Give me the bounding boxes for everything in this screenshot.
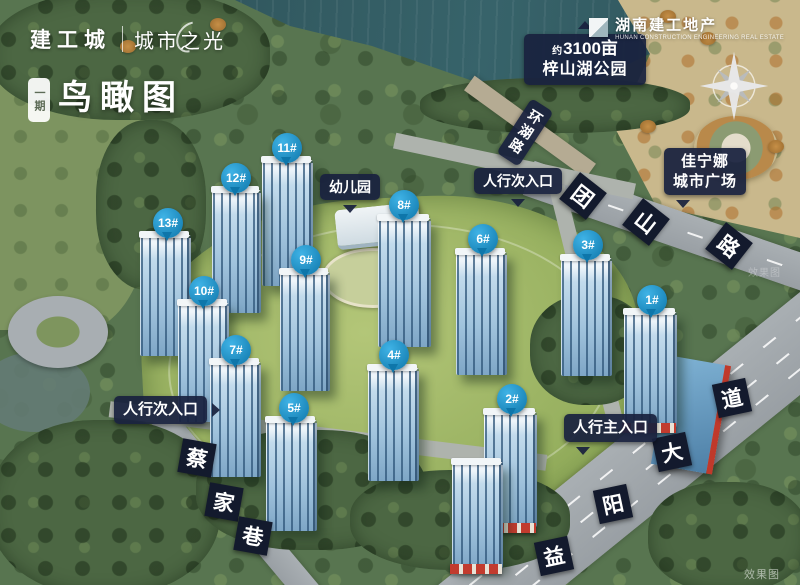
page-title: 鸟瞰图 xyxy=(58,70,184,119)
developer-logo: 湖南建工地产 HUNAN CONSTRUCTION ENGINEERING RE… xyxy=(589,14,784,41)
watermark: 效果图 xyxy=(744,566,780,582)
developer-logo-icon xyxy=(589,18,608,37)
building-badge-1: 1# xyxy=(637,285,667,315)
main-entrance-label: 人行主入口 xyxy=(564,414,657,442)
building-badge-13: 13# xyxy=(153,208,183,238)
tower-1# xyxy=(624,312,677,427)
tower-12# xyxy=(212,190,261,313)
building-badge-9: 9# xyxy=(291,245,321,275)
pointer-down-icon xyxy=(343,205,357,213)
park-area-prefix: 约 xyxy=(552,46,562,57)
building-badge-6: 6# xyxy=(468,224,498,254)
compass-icon xyxy=(696,48,772,124)
secondary-entrance-label-left: 人行次入口 xyxy=(114,396,207,424)
road-name-char: 阳 xyxy=(593,484,633,524)
secondary-entrance-label-top: 人行次入口 xyxy=(474,168,562,194)
building-badge-2: 2# xyxy=(497,384,527,414)
entrance-text: 人行次入口 xyxy=(123,401,198,418)
tower-7# xyxy=(210,362,261,477)
road-name-char: 道 xyxy=(712,378,752,418)
project-name-right: 城市之光 xyxy=(134,25,226,54)
developer-name-en: HUNAN CONSTRUCTION ENGINEERING REAL ESTA… xyxy=(615,35,784,41)
building-badge-4: 4# xyxy=(379,340,409,370)
road-name-char: 巷 xyxy=(233,516,272,555)
project-name-left: 建工城 xyxy=(30,24,111,54)
building-badge-3: 3# xyxy=(573,230,603,260)
tower-8# xyxy=(378,218,431,347)
autumn-tree xyxy=(768,140,784,153)
watermark: 效果图 xyxy=(748,264,781,279)
plaza-name-line2: 城市广场 xyxy=(673,172,737,192)
building-badge-11: 11# xyxy=(272,133,302,163)
entrance-text: 人行主入口 xyxy=(573,419,648,436)
kindergarten-text: 幼儿园 xyxy=(329,179,371,195)
pointer-right-icon xyxy=(212,403,220,417)
tower-6# xyxy=(456,252,507,375)
aerial-rendering: 约3100亩 梓山湖公园 环湖路 佳宁娜 城市广场 幼儿园 人行次入口 人行次入… xyxy=(0,0,800,585)
phase-badge: 一期 xyxy=(28,78,50,122)
autumn-tree xyxy=(640,120,656,133)
developer-name: 湖南建工地产 xyxy=(615,14,784,35)
building-badge-12: 12# xyxy=(221,163,251,193)
park-label: 约3100亩 梓山湖公园 xyxy=(524,34,646,85)
tower-9# xyxy=(280,272,330,391)
park-name: 梓山湖公园 xyxy=(533,60,637,81)
project-logo: 建工城 城市之光 xyxy=(30,24,226,54)
logo-divider xyxy=(122,26,123,52)
building-badge-8: 8# xyxy=(389,190,419,220)
kindergarten-label: 幼儿园 xyxy=(320,174,380,200)
park-area-value: 3100亩 xyxy=(563,39,618,58)
pointer-down-icon xyxy=(576,447,590,455)
plaza-name-line1: 佳宁娜 xyxy=(673,152,737,172)
tower-4# xyxy=(368,368,419,481)
city-plaza-label: 佳宁娜 城市广场 xyxy=(664,148,746,195)
tower-decor xyxy=(452,462,503,568)
tower-3# xyxy=(561,258,612,376)
building-badge-7: 7# xyxy=(221,335,251,365)
roundabout xyxy=(8,296,108,368)
building-badge-5: 5# xyxy=(279,393,309,423)
road-name-char: 家 xyxy=(204,482,243,521)
road-name-char: 益 xyxy=(534,536,574,576)
tower-5# xyxy=(266,420,317,531)
pointer-down-icon xyxy=(676,200,690,208)
building-badge-10: 10# xyxy=(189,276,219,306)
road-name-char: 大 xyxy=(652,432,692,472)
shop-front-strip xyxy=(450,564,502,574)
road-name-char: 蔡 xyxy=(177,438,216,477)
pointer-down-icon xyxy=(511,199,525,207)
entrance-text: 人行次入口 xyxy=(483,173,553,189)
